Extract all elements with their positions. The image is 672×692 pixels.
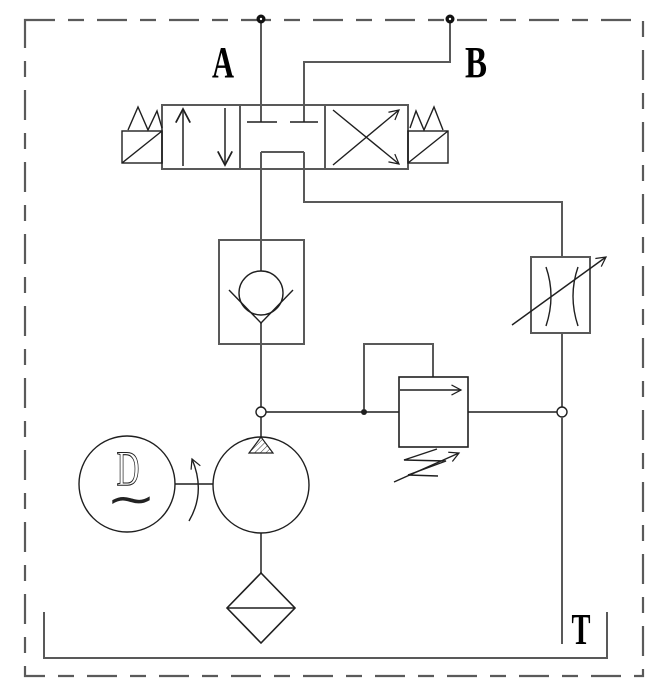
port-b-label: B [465, 38, 487, 87]
junction-circle-left [256, 407, 266, 417]
solenoid-diagonal [122, 131, 162, 163]
valve-body [162, 105, 408, 169]
junction-dot [361, 409, 367, 415]
suction-filter [227, 573, 295, 643]
tank-label: T [572, 605, 591, 654]
port-a-dot-center [260, 18, 262, 20]
junction-circle-right [557, 407, 567, 417]
relief-valve-body [399, 377, 468, 447]
tank-outline [44, 612, 607, 658]
hydraulic-schematic: A B [0, 0, 672, 692]
throttle-arc-right [573, 267, 578, 326]
valve-position-parallel [183, 108, 225, 166]
relief-valve [364, 344, 468, 482]
valve-position-center [247, 122, 318, 152]
solenoid-right [408, 107, 448, 163]
relief-spring-icon [404, 449, 446, 476]
directional-valve [122, 105, 448, 169]
rotation-arrow-icon [189, 459, 198, 521]
tank-leg-line [304, 152, 562, 257]
valve-position-crossed [333, 110, 399, 165]
hydraulic-schematic-page: A B [0, 0, 672, 692]
solenoid-diagonal [408, 131, 448, 163]
relief-adjust-arrow-icon [394, 453, 459, 482]
flow-control-valve [512, 257, 606, 407]
flow-control-body [531, 257, 590, 333]
spring-icon [128, 107, 162, 130]
check-valve [219, 240, 304, 407]
solenoid-left [122, 107, 162, 163]
enclosure-boundary [25, 20, 643, 676]
hydraulic-pump [213, 417, 309, 573]
electric-motor: D ∼ [79, 436, 213, 532]
adjustable-arrow-icon [512, 257, 606, 325]
pump-outlet-triangle-icon [249, 437, 273, 453]
check-ball-icon [239, 271, 283, 315]
port-a-label: A [212, 38, 234, 87]
spring-icon [410, 107, 443, 130]
port-b-dot-center [449, 18, 451, 20]
ac-wave-symbol: ∼ [106, 474, 156, 525]
pressure-manifold [266, 409, 557, 415]
